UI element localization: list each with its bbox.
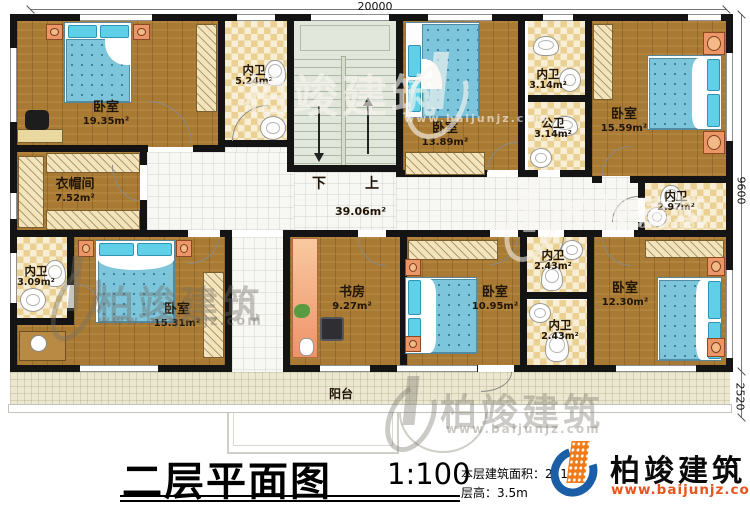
nightstand (405, 259, 421, 276)
balcony-door-opening (478, 365, 514, 372)
sheet-fold (696, 280, 707, 360)
nightstand (405, 336, 421, 352)
hallway-floor-west (147, 152, 294, 230)
room-label-study: 书房 9.27m² (307, 286, 397, 312)
room-area: 3.14m² (518, 130, 588, 141)
window (616, 365, 696, 372)
stair-arrow-down-icon (314, 153, 324, 162)
desk (17, 129, 63, 143)
room-label-bath-mid-lower: 内卫 2.43m² (525, 319, 595, 343)
window (311, 14, 389, 21)
wall (17, 145, 148, 152)
room-area: 12.30m² (580, 297, 670, 308)
window (726, 270, 733, 358)
wall (218, 140, 294, 147)
room-area: 9.27m² (307, 301, 397, 312)
wall (386, 230, 490, 237)
window (428, 14, 492, 21)
nightstand (703, 131, 725, 154)
watermark-logo-icon (408, 52, 472, 138)
title-underline (120, 500, 460, 502)
wall (560, 170, 592, 177)
drawing-title: 二层平面图 (122, 449, 332, 507)
watermark-logo-icon (388, 376, 436, 450)
room-area: 19.35m² (61, 116, 151, 127)
wall (518, 21, 525, 177)
hallway-floor-under-bath (225, 147, 287, 152)
wall (140, 152, 147, 165)
watermark-brand-url: www.baijunjz.com (566, 218, 710, 231)
wall (287, 165, 403, 172)
pillow (707, 59, 720, 91)
room-name: 衣帽间 (30, 178, 120, 193)
room-area: 2.43m² (518, 262, 588, 273)
dimension-balcony-label: 2520 (734, 377, 747, 417)
wall (592, 176, 602, 183)
balcony-label: 阳台 (329, 385, 353, 402)
room-area: 15.59m² (579, 123, 669, 134)
computer-monitor (320, 317, 344, 341)
room-area: 13.89m² (400, 137, 490, 148)
pillow (68, 25, 97, 38)
room-name: 内卫 (513, 68, 583, 81)
room-name: 内卫 (525, 319, 595, 332)
wall (283, 230, 358, 237)
dimension-height-label: 9600 (735, 171, 748, 211)
window (726, 53, 733, 141)
sink-icon (530, 148, 552, 168)
wall (585, 21, 592, 177)
pillow (137, 243, 172, 256)
toilet-icon (533, 36, 559, 56)
wardrobe (405, 152, 485, 175)
floorplan-canvas: 卧室 19.35m² 内卫 5.24m² 卧室 13.89m² 内卫 3.14m… (0, 0, 750, 509)
nightstand (707, 257, 725, 276)
nightstand (46, 24, 63, 40)
stairs-down-label: 下 (312, 173, 326, 193)
balcony-floor (10, 372, 730, 405)
nightstand (78, 240, 94, 257)
window (320, 365, 370, 372)
wall (283, 237, 290, 365)
room-name: 卧室 (61, 101, 151, 116)
window (10, 48, 17, 122)
sink-icon (20, 288, 46, 312)
company-url: www.baijunjz.com (611, 482, 750, 498)
wardrobe (196, 24, 217, 112)
room-area: 10.95m² (450, 301, 540, 312)
watermark-logo-icon (56, 256, 96, 340)
pillow (99, 243, 134, 256)
watermark-brand-url: www.baijunjz.com (446, 422, 601, 436)
hallway-area-label: 39.06m² (335, 205, 386, 218)
pillow (707, 94, 720, 127)
floor-height-note: 层高：3.5m (461, 484, 528, 501)
window (10, 193, 17, 219)
hallway-floor-center (294, 172, 396, 230)
stairs-up-label: 上 (365, 173, 379, 193)
porch-outline-inner (233, 410, 393, 446)
watermark-brand-url: www.baijunjz.com (404, 112, 548, 125)
cup (299, 338, 314, 356)
room-label-closet-room: 衣帽间 7.52m² (30, 178, 120, 204)
room-name: 卧室 (579, 108, 669, 123)
chair (25, 110, 49, 130)
window (688, 14, 721, 21)
room-area: 7.52m² (30, 193, 120, 204)
room-label-bedroom-bottom-mid: 卧室 10.95m² (450, 286, 540, 312)
room-name: 卧室 (450, 286, 540, 301)
nightstand (133, 24, 150, 40)
window (80, 14, 152, 21)
room-area: 2.43m² (525, 332, 595, 343)
wardrobe (645, 240, 724, 258)
wall (17, 230, 188, 237)
wall (630, 176, 726, 183)
wardrobe (593, 24, 613, 100)
room-label-bedroom-tr: 卧室 15.59m² (579, 108, 669, 134)
room-label-bedroom-br: 卧室 12.30m² (580, 282, 670, 308)
window (397, 365, 477, 372)
wardrobe (46, 210, 140, 230)
room-name: 书房 (307, 286, 397, 301)
wall (193, 145, 225, 152)
company-logo-icon (550, 441, 608, 505)
sheet-fold (692, 58, 705, 129)
nightstand (703, 32, 725, 55)
window (543, 14, 573, 21)
window (237, 14, 275, 21)
wall (220, 230, 232, 237)
sheet-fold (423, 279, 436, 353)
watermark-brand-url: www.baijunjz.com (98, 314, 263, 329)
watermark-logo-icon (508, 178, 558, 260)
drawing-scale: 1:100 (387, 457, 471, 491)
balcony-rail (8, 404, 732, 413)
vanity-mirror (30, 335, 47, 352)
room-label-bedroom-tl: 卧室 19.35m² (61, 101, 151, 127)
wardrobe (408, 240, 498, 260)
pillow (100, 25, 129, 38)
wall (518, 170, 538, 177)
pillow (408, 280, 421, 315)
wall (140, 200, 147, 230)
nightstand (707, 338, 725, 357)
wall (528, 95, 585, 102)
bed (64, 22, 132, 103)
room-name: 卧室 (580, 282, 670, 297)
room-label-bath-inner-top: 内卫 3.14m² (513, 68, 583, 92)
title-underline (120, 495, 460, 497)
stair-landing (300, 25, 390, 51)
window (80, 365, 158, 372)
dimension-width-label: 20000 (338, 0, 412, 13)
room-area: 3.14m² (513, 81, 583, 92)
pillow (708, 281, 721, 319)
